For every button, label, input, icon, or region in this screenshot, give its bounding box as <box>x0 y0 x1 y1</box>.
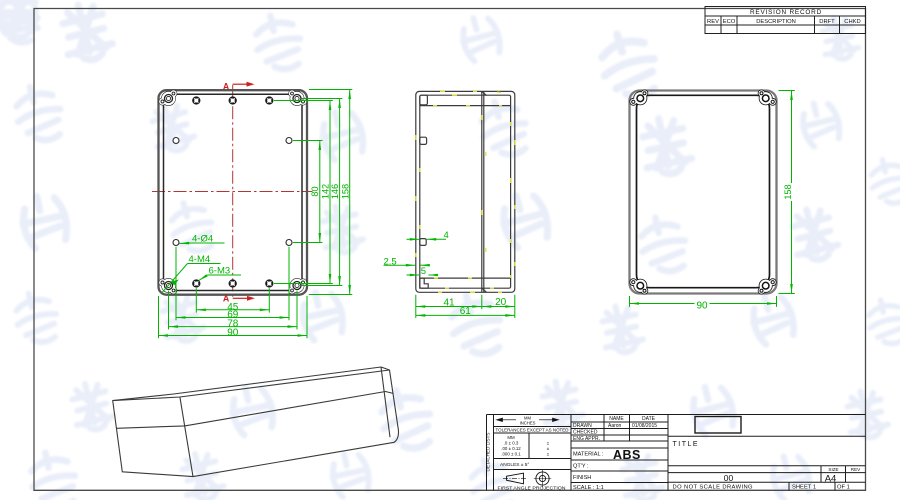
svg-text:ECO: ECO <box>723 19 736 25</box>
svg-text:REV: REV <box>707 19 719 25</box>
svg-text:DRFT: DRFT <box>819 19 835 25</box>
svg-text:MM: MM <box>507 435 515 440</box>
svg-text:158: 158 <box>783 184 793 199</box>
svg-text:6-M3: 6-M3 <box>209 266 231 277</box>
svg-text:FIRST ANGLE PROJECTION: FIRST ANGLE PROJECTION <box>498 485 566 490</box>
svg-text:ANGLES ± 5°: ANGLES ± 5° <box>500 462 529 468</box>
svg-text:TOLERANCES EXCEPT AS NOTED: TOLERANCES EXCEPT AS NOTED <box>496 427 569 432</box>
svg-text:5: 5 <box>421 266 426 277</box>
svg-text:SIZE: SIZE <box>828 467 838 472</box>
svg-text:4-M4: 4-M4 <box>189 254 211 265</box>
svg-text:.00 ± 0.12: .00 ± 0.12 <box>501 446 521 451</box>
svg-text:.000 ± 0.1: .000 ± 0.1 <box>501 451 521 456</box>
svg-text:2.5: 2.5 <box>384 256 397 267</box>
svg-text:146: 146 <box>330 184 340 199</box>
svg-text:20: 20 <box>495 297 507 308</box>
svg-text:00: 00 <box>724 473 734 483</box>
svg-text:MATERIAL :: MATERIAL : <box>573 452 604 458</box>
svg-text:Aaron: Aaron <box>608 423 622 429</box>
svg-text:INCHES: INCHES <box>520 420 536 425</box>
svg-text:41: 41 <box>443 297 455 308</box>
svg-text:CHECKED: CHECKED <box>573 430 598 436</box>
svg-text:SCALE : 1:1: SCALE : 1:1 <box>573 485 604 491</box>
svg-text:01/08/2015: 01/08/2015 <box>632 423 657 429</box>
svg-text:QT'Y :: QT'Y : <box>573 464 589 470</box>
svg-text:ENG APPR.: ENG APPR. <box>573 436 600 442</box>
svg-text:CHKD: CHKD <box>844 19 860 25</box>
svg-text:.0 ± 0.3: .0 ± 0.3 <box>504 441 519 446</box>
svg-text:158: 158 <box>340 184 350 199</box>
svg-text:DETACHED LISTS: DETACHED LISTS <box>486 433 491 472</box>
svg-text:DESCRIPTION: DESCRIPTION <box>756 19 796 25</box>
svg-text:NAME: NAME <box>609 416 624 422</box>
svg-text:61: 61 <box>460 306 472 317</box>
svg-text:90: 90 <box>227 328 239 339</box>
svg-text:DO NOT SCALE DRAWING: DO NOT SCALE DRAWING <box>673 485 754 491</box>
svg-text:4-Ø4: 4-Ø4 <box>192 234 213 245</box>
svg-text:A: A <box>223 81 230 91</box>
svg-text:FINISH: FINISH <box>573 475 591 481</box>
svg-text:TITLE: TITLE <box>673 441 700 448</box>
svg-text:ABS: ABS <box>613 448 641 462</box>
svg-text:REV: REV <box>851 467 861 472</box>
svg-text:OF 1: OF 1 <box>837 485 850 491</box>
svg-text:REVISION RECORD: REVISION RECORD <box>750 9 822 16</box>
svg-text:SHEET 1: SHEET 1 <box>792 485 816 491</box>
svg-text:DATE: DATE <box>642 416 656 422</box>
svg-text:90: 90 <box>696 301 708 312</box>
svg-text:4: 4 <box>444 230 449 241</box>
svg-text:142: 142 <box>321 184 331 199</box>
svg-text:80: 80 <box>310 186 320 196</box>
svg-text:A4: A4 <box>825 473 837 484</box>
svg-text:DRAWN: DRAWN <box>573 423 592 429</box>
